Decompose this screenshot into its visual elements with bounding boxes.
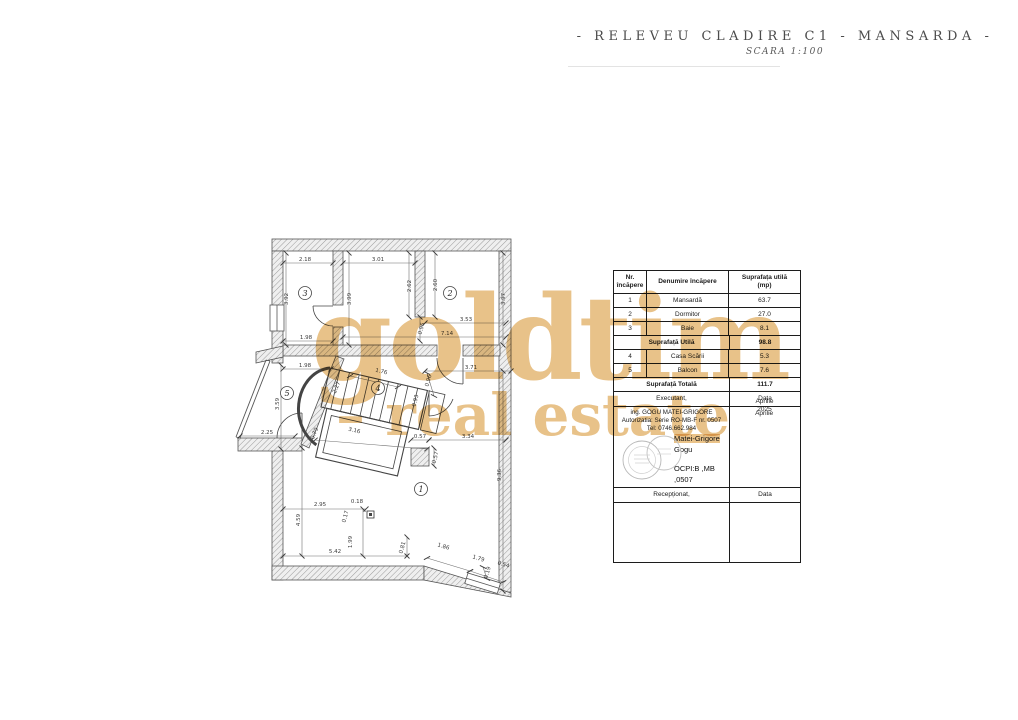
balcony-railing bbox=[236, 360, 270, 438]
dimension-label: 3.34 bbox=[462, 434, 475, 440]
table-row: 3 Baie 8.1 bbox=[614, 322, 800, 336]
table-header-row: Nr. încăpere Denumire încăpere Suprafața… bbox=[614, 271, 800, 294]
cell-area: 7.6 bbox=[729, 364, 800, 377]
area-table: Nr. încăpere Denumire încăpere Suprafața… bbox=[613, 270, 801, 563]
cell-nr: 2 bbox=[614, 308, 647, 321]
chimney bbox=[411, 448, 429, 466]
dimension-label: 1.79 bbox=[472, 554, 486, 563]
cell-name: Baie bbox=[647, 322, 729, 335]
dimension-label: 2.62 bbox=[407, 280, 413, 292]
room-number: 5 bbox=[284, 389, 289, 398]
dimension-label: 0.57 bbox=[432, 451, 441, 465]
dimension-label: 3.97 bbox=[501, 292, 507, 305]
cell-area: 63.7 bbox=[729, 294, 800, 307]
dimension-label: 2.95 bbox=[314, 502, 327, 508]
round-stamp bbox=[604, 427, 688, 485]
cell-name: Dormitor bbox=[647, 308, 729, 321]
dimension-label: 3.01 bbox=[372, 257, 384, 263]
cell-area: 27.0 bbox=[729, 308, 800, 321]
dimension-label: 4.59 bbox=[296, 513, 302, 526]
dimension-label: 3.71 bbox=[465, 365, 477, 371]
cell-nr: 3 bbox=[614, 322, 647, 335]
subtotal-row: Suprafață Utilă 98.8 bbox=[614, 336, 800, 350]
executant-authorization: Autorizatia: Serie RO-MB-F nr. 0507 bbox=[622, 417, 721, 425]
total-label: Suprafață Totală bbox=[614, 378, 730, 391]
dimension-label: 0.96 bbox=[418, 322, 427, 336]
structural-post bbox=[367, 511, 374, 518]
dimension-label: 2.25 bbox=[261, 430, 274, 436]
executant-name: ing. GOGU MATEI-GRIGORE bbox=[630, 409, 712, 417]
cell-nr: 5 bbox=[614, 364, 647, 377]
dimension-label: 2.60 bbox=[433, 278, 439, 291]
room-number: 3 bbox=[302, 289, 307, 298]
floor-plan: 2.183.013.923.992.622.603.973.530.961.98… bbox=[0, 0, 1018, 720]
header-nr: Nr. încăpere bbox=[614, 271, 647, 293]
window bbox=[270, 305, 284, 331]
door bbox=[313, 306, 333, 326]
scanned-document-page: 2.183.013.923.992.622.603.973.530.961.98… bbox=[0, 0, 1018, 720]
dimension-label: 3.16 bbox=[348, 427, 362, 436]
cell-name: Mansardă bbox=[647, 294, 729, 307]
cell-name: Casa Scării bbox=[647, 350, 729, 363]
dimension-label: 0.19 bbox=[483, 565, 492, 579]
dimension-label: 1.86 bbox=[437, 542, 451, 551]
room-number: 1 bbox=[418, 485, 423, 494]
executant-label: Executant, bbox=[614, 392, 730, 406]
dimension-label: 0.18 bbox=[351, 499, 364, 505]
dimension-label: 0.57 bbox=[414, 434, 427, 440]
dimension-label: 1.99 bbox=[348, 535, 354, 548]
dimension-label: 7.14 bbox=[441, 331, 454, 337]
dimension-label: 1.98 bbox=[299, 363, 312, 369]
dimension-label: 1.98 bbox=[300, 335, 313, 341]
room-number: 4 bbox=[374, 384, 380, 393]
cell-area: 8.1 bbox=[729, 322, 800, 335]
dimension-label: 5.42 bbox=[329, 549, 341, 555]
dimension-label: 0.93 bbox=[412, 394, 421, 408]
cell-area: 5.3 bbox=[729, 350, 800, 363]
dimension-label: 0.17 bbox=[342, 510, 351, 524]
dimension-label: 2.18 bbox=[299, 257, 312, 263]
table-row: 4 Casa Scării 5.3 bbox=[614, 350, 800, 364]
executant-date-text: Aprilie 2025 bbox=[730, 398, 799, 415]
dimension-label: 3.53 bbox=[460, 317, 473, 323]
receptionat-row: Recepționat, Data bbox=[614, 488, 800, 503]
empty-cell bbox=[730, 503, 800, 562]
executant-date: Aprilie bbox=[730, 407, 800, 487]
subtotal-label: Suprafață Utilă bbox=[614, 336, 730, 349]
walls-group bbox=[238, 239, 511, 597]
total-value: 111.7 bbox=[730, 378, 800, 391]
cell-nr: 4 bbox=[614, 350, 647, 363]
dimension-label: 3.92 bbox=[284, 293, 290, 305]
empty-cell bbox=[614, 503, 730, 562]
table-row: 2 Dormitor 27.0 bbox=[614, 308, 800, 322]
dimension-label: 0.96 bbox=[425, 374, 434, 388]
dimension-label: 0.81 bbox=[399, 541, 408, 554]
table-row: 5 Balcon 7.6 bbox=[614, 364, 800, 378]
dimension-label: 9.36 bbox=[497, 468, 503, 481]
executant-details: ing. GOGU MATEI-GRIGORE Autorizatia: Ser… bbox=[614, 407, 730, 487]
room-number: 2 bbox=[446, 289, 452, 298]
dimension-label: 3.59 bbox=[275, 397, 281, 410]
header-denumire: Denumire încăpere bbox=[647, 271, 729, 293]
receptionat-data-label: Data bbox=[730, 488, 800, 502]
cell-name: Balcon bbox=[647, 364, 729, 377]
executant-detail-row: ing. GOGU MATEI-GRIGORE Autorizatia: Ser… bbox=[614, 407, 800, 488]
receptionat-label: Recepționat, bbox=[614, 488, 730, 502]
table-row: 1 Mansardă 63.7 bbox=[614, 294, 800, 308]
header-suprafata: Suprafața utilă (mp) bbox=[729, 271, 800, 293]
dimension-label: 1.76 bbox=[375, 368, 389, 377]
dimension-label: 3.99 bbox=[347, 292, 353, 305]
cell-nr: 1 bbox=[614, 294, 647, 307]
empty-row bbox=[614, 503, 800, 562]
subtotal-value: 98.8 bbox=[730, 336, 800, 349]
total-row: Suprafață Totală 111.7 bbox=[614, 378, 800, 392]
